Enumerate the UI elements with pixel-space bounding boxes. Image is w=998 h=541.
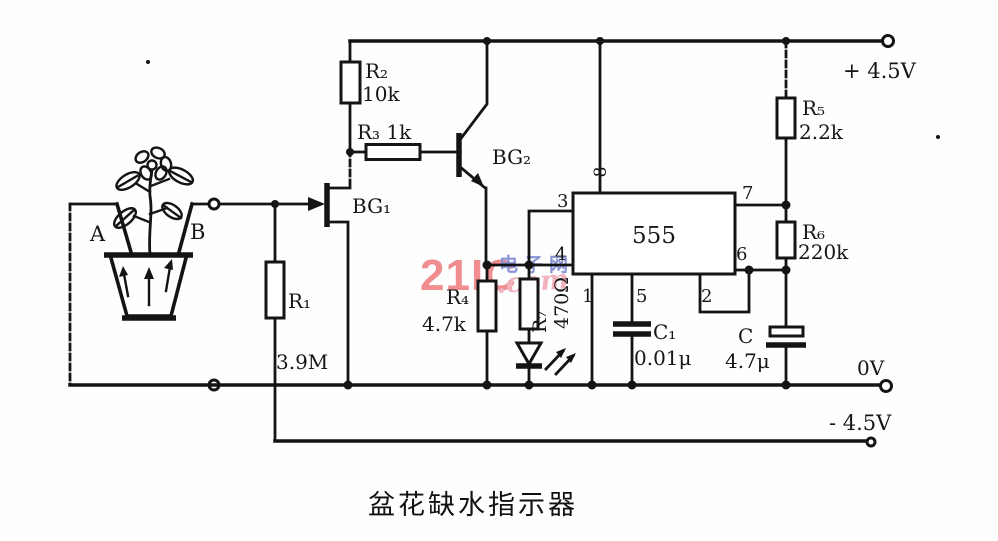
negative-rail: - 4.5V bbox=[275, 411, 892, 446]
positive-terminal bbox=[883, 36, 894, 47]
scan-speck bbox=[146, 60, 150, 64]
c1-value: 0.01μ bbox=[634, 346, 692, 370]
r6-value: 220k bbox=[798, 240, 849, 264]
r5-name: R₅ bbox=[802, 96, 825, 120]
pin-8-label: 8 bbox=[591, 167, 611, 178]
negative-rail-label: - 4.5V bbox=[829, 411, 892, 435]
pin-2-label: 2 bbox=[701, 286, 712, 307]
probe-connector-top bbox=[209, 199, 219, 209]
circuit-schematic-page: 21IC 电子网 .com bbox=[0, 0, 998, 541]
r1-value: 3.9M bbox=[276, 350, 328, 374]
c-value: 4.7μ bbox=[725, 349, 770, 373]
c1-name: C₁ bbox=[653, 320, 676, 344]
bg2-label: BG₂ bbox=[492, 145, 531, 169]
flower-pot bbox=[104, 255, 193, 318]
pin-3-label: 3 bbox=[557, 191, 568, 212]
r2-name: R₂ bbox=[365, 59, 388, 83]
resistor-r1: R₁ 3.9M bbox=[266, 200, 328, 441]
r2-value: 10k bbox=[362, 82, 400, 106]
pin-6-label: 6 bbox=[736, 244, 747, 265]
r7-value: 470Ω bbox=[551, 277, 573, 329]
bg1-gate-arrow bbox=[308, 197, 325, 211]
bg2-emitter-arrow bbox=[471, 173, 484, 187]
resistor-r5: R₅ 2.2k bbox=[777, 41, 844, 210]
led bbox=[516, 343, 576, 385]
pin-7-label: 7 bbox=[742, 183, 753, 204]
zero-rail-label: 0V bbox=[857, 356, 885, 380]
ic-555-label: 555 bbox=[632, 223, 676, 249]
r4-name: R₄ bbox=[446, 285, 469, 309]
resistor-r3: R₃ 1k bbox=[350, 120, 458, 160]
pin-4-label: 4 bbox=[555, 244, 566, 265]
top-rail: + 4.5V bbox=[350, 36, 917, 84]
negative-terminal bbox=[867, 438, 875, 446]
circuit-schematic: 21IC 电子网 .com bbox=[0, 0, 998, 541]
capacitor-c1: C₁ 0.01μ bbox=[613, 320, 692, 385]
zero-terminal bbox=[881, 381, 892, 392]
capacitor-c: C 4.7μ bbox=[725, 270, 806, 385]
plant-illustration: A B bbox=[89, 146, 205, 318]
transistor-bg2: BG₂ bbox=[459, 41, 531, 265]
led-diode-triangle bbox=[517, 343, 541, 364]
pin-1-label: 1 bbox=[582, 286, 593, 307]
electrode-a-label: A bbox=[89, 222, 106, 246]
r7-name: R₇ bbox=[529, 311, 551, 333]
bg1-label: BG₁ bbox=[352, 194, 391, 218]
scan-speck bbox=[936, 135, 940, 139]
figure-caption: 盆花缺水指示器 bbox=[368, 490, 578, 521]
c-name: C bbox=[738, 324, 753, 348]
pin-5-label: 5 bbox=[636, 286, 647, 307]
resistor-r6: R₆ 220k bbox=[777, 205, 849, 275]
positive-rail-label: + 4.5V bbox=[843, 59, 917, 83]
electrode-b-label: B bbox=[190, 220, 205, 244]
r4-value: 4.7k bbox=[422, 312, 467, 336]
r3-name: R₃ 1k bbox=[357, 120, 412, 144]
r1-name: R₁ bbox=[288, 289, 311, 313]
r5-value: 2.2k bbox=[799, 120, 844, 144]
